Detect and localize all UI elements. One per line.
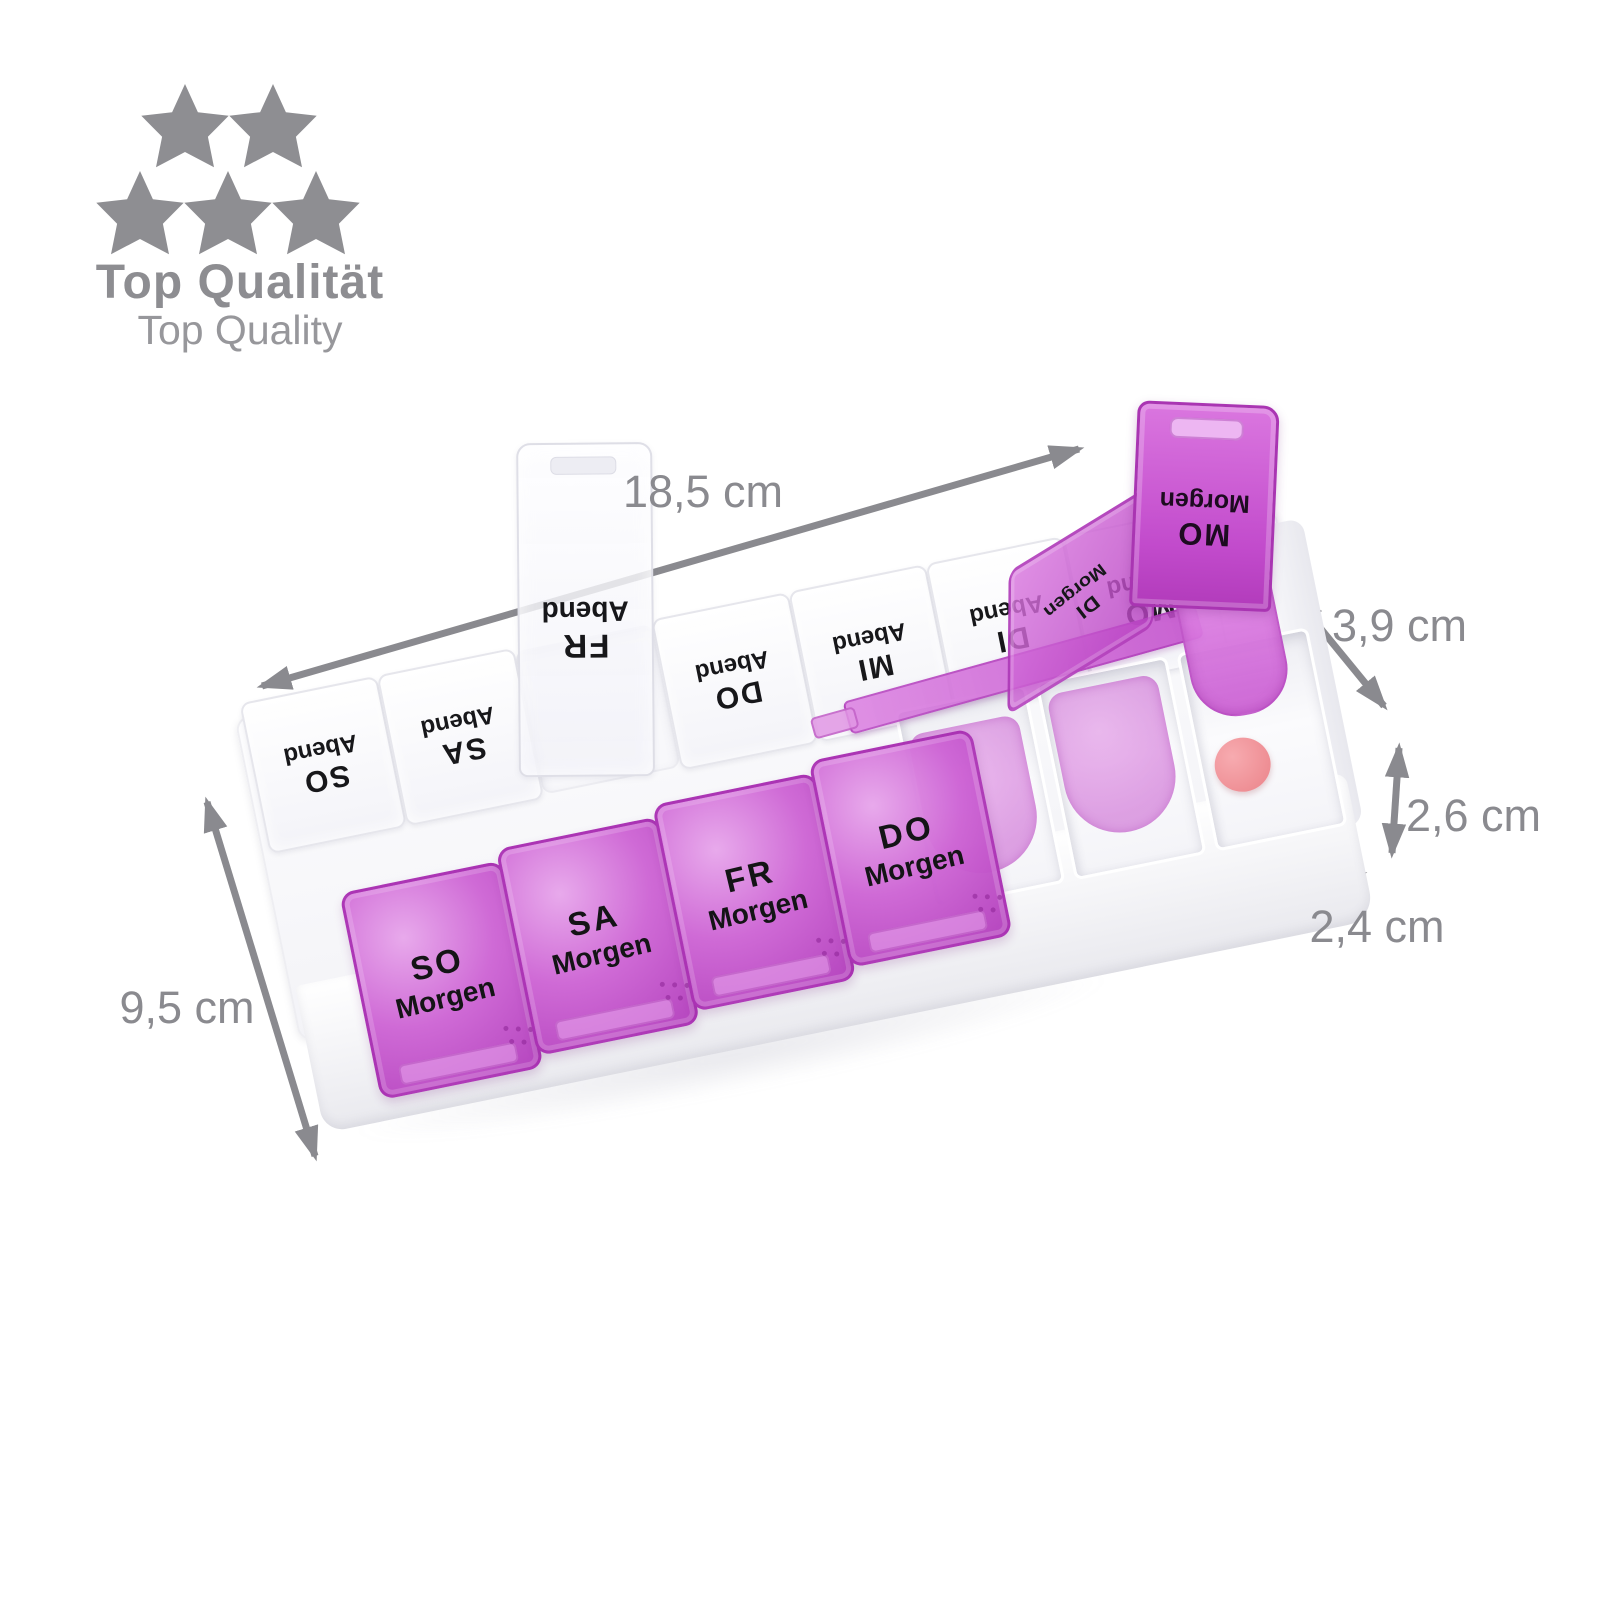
lid-height-dimension-label: 3,9 cm: [1332, 600, 1467, 652]
lid-label: DO Morgen: [853, 802, 968, 894]
lid-label: MI Abend: [829, 616, 914, 690]
braille-dots: [659, 981, 665, 987]
depth-dimension-label: 9,5 cm: [92, 982, 282, 1034]
lid-label: SO Morgen: [384, 934, 499, 1026]
lid-label: MO Morgen: [1157, 486, 1250, 553]
base-height-arrow: [1392, 748, 1399, 853]
lid-label: DO Abend: [692, 644, 777, 718]
compartment-width-dimension-label: 2,4 cm: [1287, 901, 1467, 953]
braille-dots: [972, 893, 978, 899]
lid-mo-morgen-open: MO Morgen: [1129, 400, 1280, 612]
braille-dots: [503, 1025, 509, 1031]
lid-handle-slot: [1169, 417, 1244, 441]
pink-pill: [1210, 733, 1276, 797]
lid-label: SA Abend: [418, 700, 503, 774]
braille-dots: [816, 937, 822, 943]
lid-label: DI Morgen: [1035, 555, 1128, 642]
lid-label: SO Abend: [281, 728, 366, 802]
open-lid-through-well: [1046, 673, 1186, 842]
lid-label: SA Morgen: [541, 890, 656, 982]
lid-label: FR Abend: [542, 595, 630, 664]
lid-label: FR Morgen: [697, 846, 812, 938]
base-height-dimension-label: 2,6 cm: [1406, 790, 1541, 842]
width-dimension-label: 18,5 cm: [588, 466, 818, 518]
